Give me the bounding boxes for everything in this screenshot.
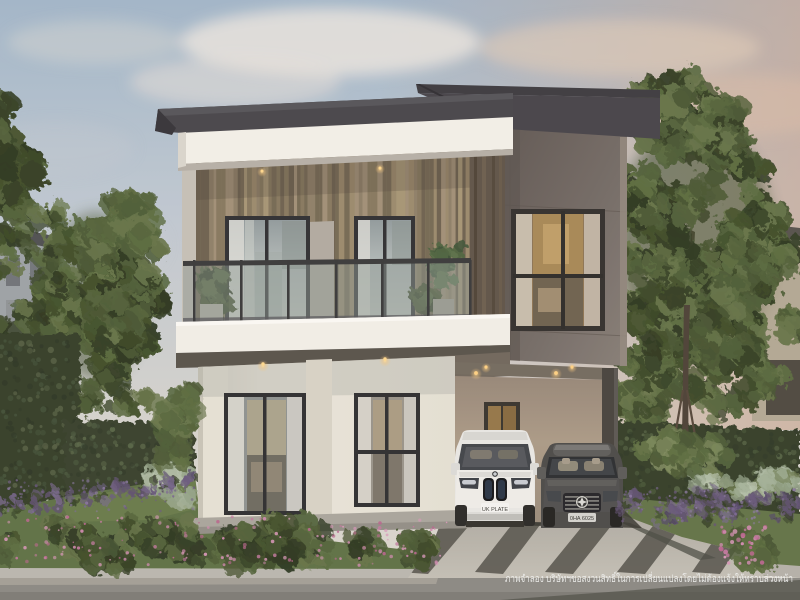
svg-text:ภาพจำลอง บริษัทฯขอสงวนสิทธิ์ใน: ภาพจำลอง บริษัทฯขอสงวนสิทธิ์ในการเปลี่ยน…	[505, 571, 793, 585]
